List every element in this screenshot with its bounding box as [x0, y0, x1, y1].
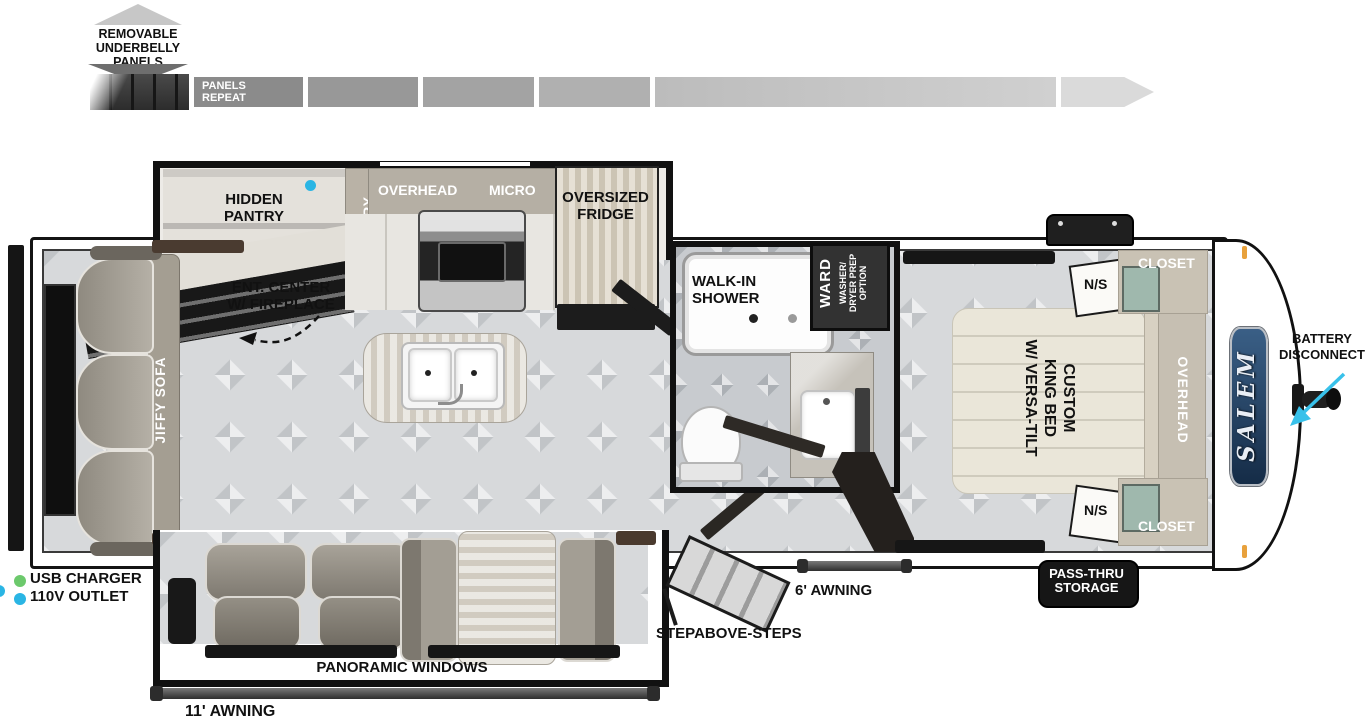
oversized-fridge: [555, 166, 659, 308]
king-bed-label: CUSTOM KING BED W/ VERSA-TILT: [1018, 308, 1078, 488]
sofa-cushion-3: [76, 450, 154, 546]
roof-accessory: [1046, 214, 1134, 246]
ent-center-label: ENT. CENTER W/ FIREPLACE: [222, 280, 340, 314]
salem-brand-label: SALEM: [1234, 330, 1260, 480]
outlet-110v-marker-rear: [0, 585, 5, 597]
sofa-armrest-bottom: [90, 542, 162, 556]
toilet-tank: [679, 462, 743, 482]
walk-in-shower-label: WALK-IN SHOWER: [692, 274, 792, 308]
underbelly-panel-segment-5: [539, 77, 650, 107]
theater-seat-1-back: [205, 543, 307, 601]
jiffy-sofa-label: JIFFY SOFA: [154, 300, 172, 500]
theater-seat-2-back: [310, 543, 412, 601]
underbelly-panel-segment-1: [90, 74, 189, 110]
kitchen-slide-window-dash: [380, 162, 530, 166]
roof-accessory-screw-right: [1112, 221, 1117, 226]
ns-top-label: N/S: [1084, 277, 1107, 293]
living-slide-window-dash: [248, 674, 408, 678]
usb-charger-dot: [14, 575, 26, 587]
sink-drain-right: [471, 370, 477, 376]
rear-tv: [44, 284, 76, 516]
awning-6-cap-left: [797, 559, 808, 573]
dinette-bench-left: [400, 538, 458, 662]
awning-11-label: 11' AWNING: [185, 703, 275, 721]
usb-charger-label: USB CHARGER: [30, 571, 142, 588]
underbelly-panel-segment-3: [308, 77, 418, 107]
battery-disconnect-label: BATTERY DISCONNECT: [1278, 331, 1366, 364]
outlet-110v-marker-kitchen: [305, 180, 316, 191]
underbelly-panel-arrow-segment: [1061, 77, 1154, 107]
underbelly-label: REMOVABLE UNDERBELLY PANELS: [86, 27, 190, 69]
rv-floorplan-page: { "colors": { "accent_cyan": "#2ab5e4", …: [0, 0, 1366, 724]
awning-11-cap-left: [150, 686, 163, 701]
sofa-cushion-2: [76, 354, 154, 450]
panoramic-window-strip-left: [205, 645, 397, 658]
panoramic-window-strip-right: [428, 645, 620, 658]
washer-dryer-label: WASHER/ DRYER PREP OPTION: [839, 245, 881, 321]
roof-accessory-screw-left: [1058, 221, 1063, 226]
rear-bumper: [8, 245, 24, 551]
hidden-pantry-label: HIDDEN PANTRY: [198, 192, 310, 226]
shower-drain: [749, 314, 758, 323]
bed-line-3: W/ VERSA-TILT: [1020, 308, 1039, 488]
stepabove-steps-label: STEPABOVE-STEPS: [656, 626, 802, 643]
panels-repeat-label: PANELS REPEAT: [202, 80, 262, 104]
bedroom-window-bottom: [895, 540, 1045, 553]
end-table-dinette: [616, 531, 656, 545]
pass-thru-storage-label: PASS-THRU STORAGE: [1040, 567, 1133, 596]
awning-11-cap-right: [647, 686, 660, 701]
dinette-bench-right: [558, 538, 616, 662]
underbelly-panel-segment-4: [423, 77, 534, 107]
awning-6-cap-right: [901, 559, 912, 573]
closet-top-label: CLOSET: [1138, 256, 1195, 271]
awning-6-bar: [802, 561, 906, 571]
ward-label: WARD: [818, 245, 836, 321]
clearance-light-bottom: [1242, 545, 1247, 558]
outlet-110v-label: 110V OUTLET: [30, 589, 128, 606]
underbelly-panel-segment-6: [655, 77, 1056, 107]
bedroom-overhead-label: OVERHEAD: [1172, 315, 1190, 485]
sofa-cushion-1: [76, 258, 154, 354]
end-table-top: [152, 240, 244, 253]
bed-headboard: [1144, 302, 1159, 500]
bed-line-2: KING BED: [1040, 308, 1059, 488]
clearance-light-top: [1242, 246, 1247, 259]
shower-head-dot: [788, 314, 797, 323]
bed-line-1: CUSTOM: [1059, 308, 1078, 488]
washer-line-3: OPTION: [859, 245, 869, 321]
ns-bottom-label: N/S: [1084, 503, 1107, 519]
theater-seat-2-cushion: [318, 596, 406, 650]
fridge-label: OVERSIZED FRIDGE: [558, 190, 653, 224]
closet-bottom-label: CLOSET: [1138, 519, 1195, 534]
slideout-side-window: [168, 578, 196, 644]
battery-disconnect-arrow-icon: [1286, 368, 1352, 432]
awning-11-bar: [155, 688, 655, 699]
underbelly-panel-segment-2: PANELS REPEAT: [194, 77, 303, 107]
bedroom-window-top: [903, 251, 1055, 264]
sink-drain-left: [425, 370, 431, 376]
awning-6-label: 6' AWNING: [795, 583, 872, 600]
underbelly-up-arrow-icon: [94, 4, 182, 25]
micro-label: MICRO: [489, 183, 536, 198]
oven-window: [438, 242, 506, 282]
kitchen-overhead-label: OVERHEAD: [378, 183, 457, 198]
vanity-faucet: [823, 398, 830, 405]
outlet-110v-dot: [14, 593, 26, 605]
ent-center-arrow-icon: [235, 312, 327, 354]
theater-seat-1-cushion: [213, 596, 301, 650]
closet-top-glass: [1122, 266, 1160, 312]
